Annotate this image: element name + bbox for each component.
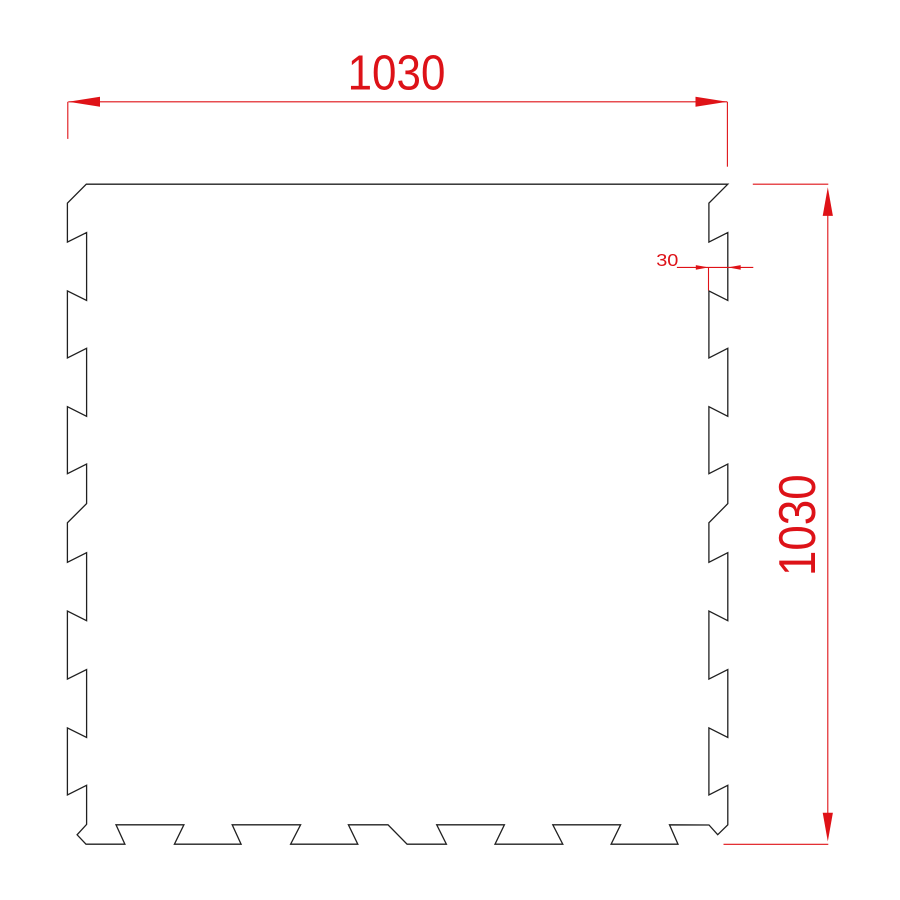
- svg-text:1030: 1030: [348, 45, 446, 100]
- svg-text:30: 30: [656, 250, 678, 270]
- svg-text:1030: 1030: [769, 474, 826, 576]
